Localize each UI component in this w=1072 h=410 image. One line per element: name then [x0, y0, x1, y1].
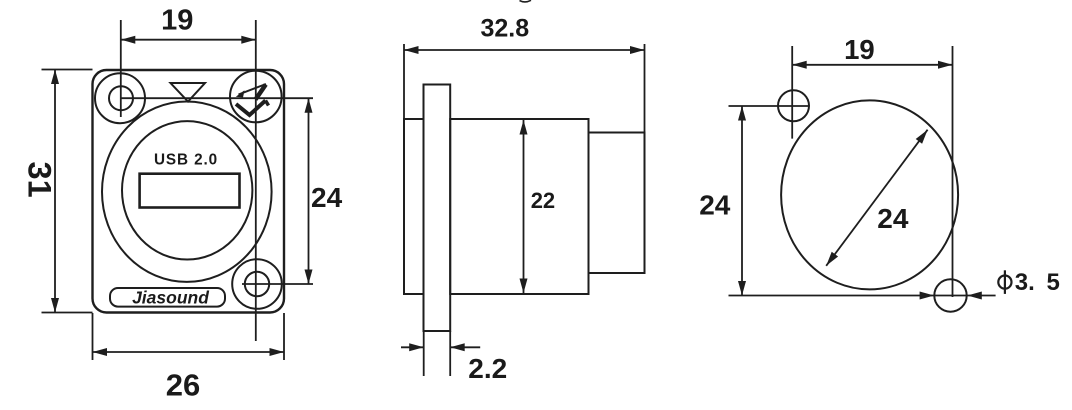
svg-text:24: 24 [877, 203, 909, 234]
svg-text:2.2: 2.2 [468, 353, 507, 384]
svg-text:Jiasound: Jiasound [132, 288, 209, 308]
svg-text:24: 24 [311, 182, 343, 213]
svg-text:5: 5 [1047, 269, 1060, 296]
svg-text:22: 22 [531, 188, 555, 213]
svg-text:19: 19 [161, 5, 193, 37]
svg-text:24: 24 [699, 189, 731, 220]
svg-text:USB 2.0: USB 2.0 [154, 152, 218, 169]
svg-text:3.: 3. [1015, 269, 1035, 296]
svg-text:26: 26 [166, 368, 200, 403]
svg-text:32.8: 32.8 [480, 14, 529, 42]
svg-text:19: 19 [844, 34, 875, 65]
svg-text:31: 31 [22, 162, 58, 198]
